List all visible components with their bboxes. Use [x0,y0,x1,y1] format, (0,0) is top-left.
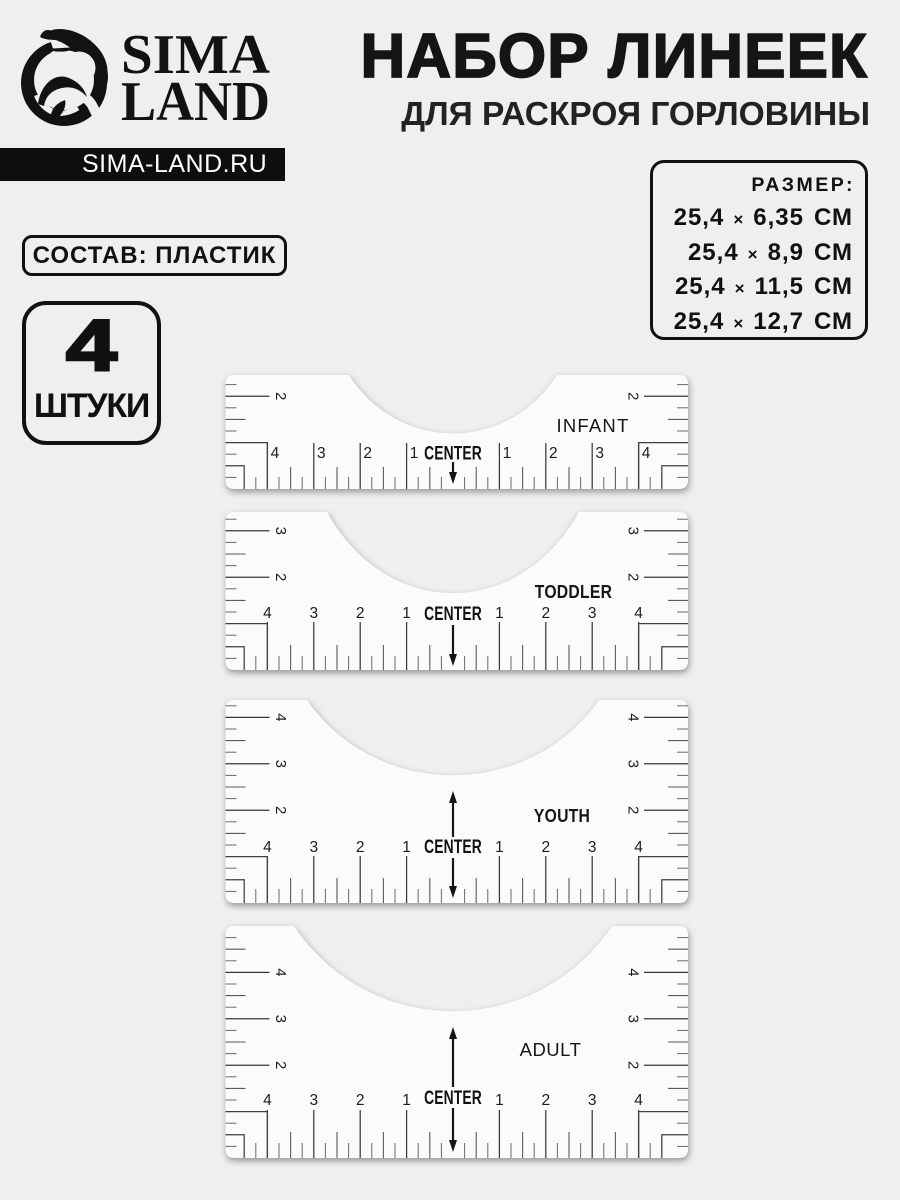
svg-text:2: 2 [356,605,365,622]
svg-text:3: 3 [309,839,318,856]
svg-text:3: 3 [309,605,318,622]
svg-text:2: 2 [356,1092,365,1109]
svg-text:CENTER: CENTER [424,442,482,464]
svg-text:4: 4 [634,839,643,856]
svg-text:2: 2 [272,392,289,400]
svg-text:1: 1 [495,839,504,856]
svg-text:3: 3 [595,445,604,462]
svg-text:3: 3 [625,760,642,768]
svg-text:2: 2 [272,806,289,814]
svg-text:4: 4 [625,968,642,976]
svg-text:2: 2 [541,1092,550,1109]
svg-text:1: 1 [402,1092,411,1109]
svg-text:TODDLER: TODDLER [535,581,613,603]
svg-text:3: 3 [272,760,289,768]
svg-text:4: 4 [634,605,643,622]
svg-text:2: 2 [541,605,550,622]
svg-text:4: 4 [263,839,272,856]
svg-text:4: 4 [272,713,289,721]
svg-text:2: 2 [625,392,642,400]
svg-text:1: 1 [402,839,411,856]
svg-text:2: 2 [625,573,642,581]
svg-text:2: 2 [549,445,558,462]
svg-text:CENTER: CENTER [424,836,482,858]
svg-text:2: 2 [363,445,372,462]
svg-text:3: 3 [588,605,597,622]
svg-text:2: 2 [272,1061,289,1069]
svg-text:4: 4 [263,1092,272,1109]
svg-text:3: 3 [309,1092,318,1109]
svg-text:4: 4 [263,605,272,622]
svg-text:3: 3 [317,445,326,462]
svg-text:1: 1 [495,1092,504,1109]
svg-text:3: 3 [625,527,642,535]
svg-text:3: 3 [272,527,289,535]
svg-text:2: 2 [356,839,365,856]
svg-text:2: 2 [541,839,550,856]
svg-text:1: 1 [495,605,504,622]
svg-text:INFANT: INFANT [557,415,630,436]
svg-text:1: 1 [410,445,419,462]
svg-text:2: 2 [625,806,642,814]
svg-text:1: 1 [503,445,512,462]
svg-text:4: 4 [634,1092,643,1109]
svg-text:YOUTH: YOUTH [534,805,590,827]
svg-text:2: 2 [272,573,289,581]
svg-text:CENTER: CENTER [424,1087,482,1109]
svg-text:1: 1 [402,605,411,622]
svg-text:ADULT: ADULT [520,1039,582,1060]
svg-text:4: 4 [642,445,651,462]
svg-text:4: 4 [271,445,280,462]
svg-text:2: 2 [625,1061,642,1069]
svg-text:CENTER: CENTER [424,603,482,625]
svg-text:3: 3 [588,839,597,856]
svg-text:4: 4 [625,713,642,721]
svg-text:3: 3 [588,1092,597,1109]
svg-text:3: 3 [272,1015,289,1023]
svg-text:3: 3 [625,1015,642,1023]
svg-text:4: 4 [272,968,289,976]
